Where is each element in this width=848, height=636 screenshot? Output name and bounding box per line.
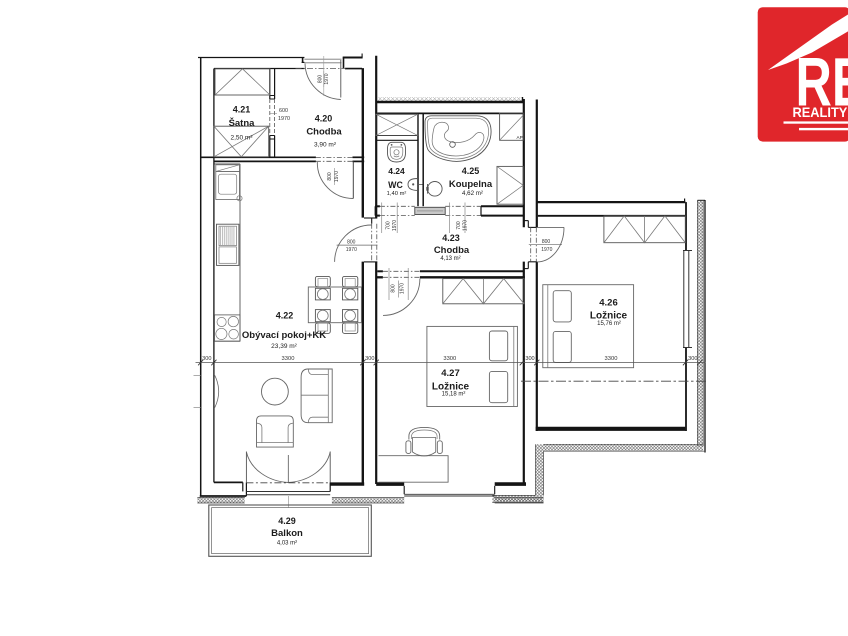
svg-text:4.29: 4.29 <box>278 516 296 526</box>
svg-text:Koupelna: Koupelna <box>449 179 493 190</box>
svg-text:2,50 m²: 2,50 m² <box>230 135 253 142</box>
svg-text:15,76 m²: 15,76 m² <box>597 321 621 327</box>
svg-text:4.21: 4.21 <box>233 105 251 115</box>
svg-text:700: 700 <box>456 221 462 230</box>
svg-text:1970: 1970 <box>541 247 552 253</box>
svg-text:Chodba: Chodba <box>434 245 470 256</box>
svg-text:1970: 1970 <box>334 171 340 182</box>
svg-text:3300: 3300 <box>443 356 456 362</box>
svg-text:4.27: 4.27 <box>441 368 460 379</box>
svg-text:300: 300 <box>202 356 211 362</box>
svg-text:4.20: 4.20 <box>315 114 333 124</box>
svg-text:4.26: 4.26 <box>599 298 618 309</box>
svg-text:3,90 m²: 3,90 m² <box>314 142 337 149</box>
svg-text:1970: 1970 <box>392 220 398 231</box>
svg-text:4,03 m²: 4,03 m² <box>277 541 297 547</box>
svg-text:4,62 m²: 4,62 m² <box>462 190 483 197</box>
svg-text:1970: 1970 <box>399 283 405 294</box>
svg-text:4.23: 4.23 <box>442 233 460 243</box>
svg-text:300: 300 <box>525 356 534 362</box>
svg-text:1970: 1970 <box>324 73 330 84</box>
svg-text:1970: 1970 <box>278 116 290 122</box>
svg-text:800: 800 <box>317 75 323 84</box>
svg-text:AP: AP <box>517 135 523 140</box>
svg-text:1970: 1970 <box>462 220 468 231</box>
svg-text:700: 700 <box>385 221 391 230</box>
svg-text:800: 800 <box>390 284 396 293</box>
svg-text:800: 800 <box>327 172 333 181</box>
svg-text:Chodba: Chodba <box>306 127 342 138</box>
svg-text:300: 300 <box>688 356 697 362</box>
svg-text:3300: 3300 <box>605 356 618 362</box>
svg-text:600: 600 <box>279 108 288 114</box>
svg-text:1970: 1970 <box>346 247 357 253</box>
svg-text:800: 800 <box>542 239 551 245</box>
svg-text:1,40 m²: 1,40 m² <box>387 191 407 197</box>
svg-text:15,18 m²: 15,18 m² <box>442 391 466 397</box>
svg-text:WC: WC <box>388 180 403 190</box>
svg-text:Obývací pokoj+KK: Obývací pokoj+KK <box>242 330 326 341</box>
svg-text:23,39 m²: 23,39 m² <box>271 343 297 350</box>
svg-text:Balkon: Balkon <box>271 528 303 539</box>
svg-text:REALITY: REALITY <box>793 105 848 120</box>
svg-text:300: 300 <box>365 356 374 362</box>
svg-text:800: 800 <box>347 240 356 246</box>
svg-text:3300: 3300 <box>282 356 295 362</box>
svg-text:4.22: 4.22 <box>276 311 294 321</box>
svg-text:4.25: 4.25 <box>462 166 480 176</box>
svg-text:4.24: 4.24 <box>388 166 405 176</box>
svg-text:Šatna: Šatna <box>229 117 256 129</box>
svg-text:4,13 m²: 4,13 m² <box>440 256 460 262</box>
